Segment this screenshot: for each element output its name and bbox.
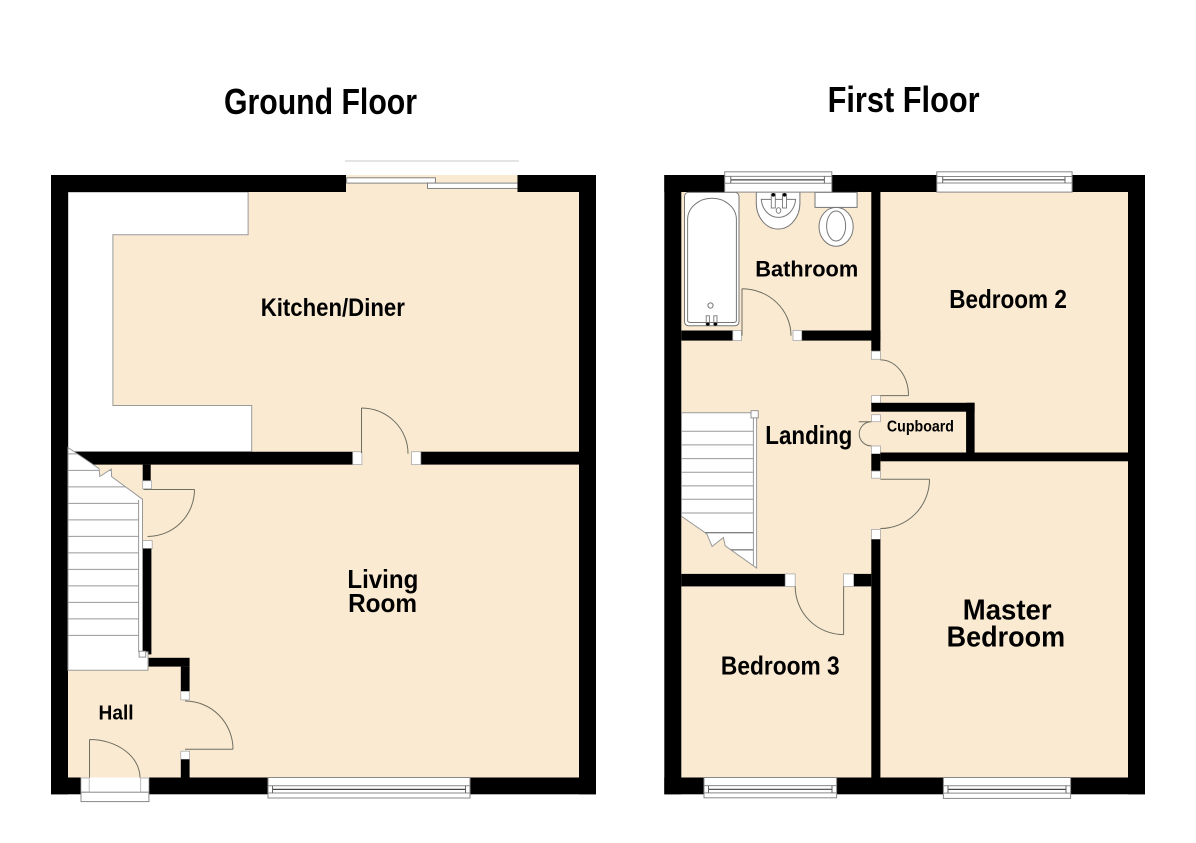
svg-text:Bedroom 2: Bedroom 2 [949,284,1067,314]
svg-text:Room: Room [348,588,417,618]
svg-text:Hall: Hall [99,703,134,725]
svg-text:Landing: Landing [765,420,852,450]
svg-text:Bedroom 3: Bedroom 3 [721,651,840,681]
svg-text:Bedroom: Bedroom [947,622,1066,654]
svg-text:First Floor: First Floor [828,79,980,120]
svg-text:Kitchen/Diner: Kitchen/Diner [261,294,405,322]
svg-text:Bathroom: Bathroom [755,257,858,282]
svg-text:Cupboard: Cupboard [887,419,954,436]
svg-text:Ground Floor: Ground Floor [224,81,417,122]
